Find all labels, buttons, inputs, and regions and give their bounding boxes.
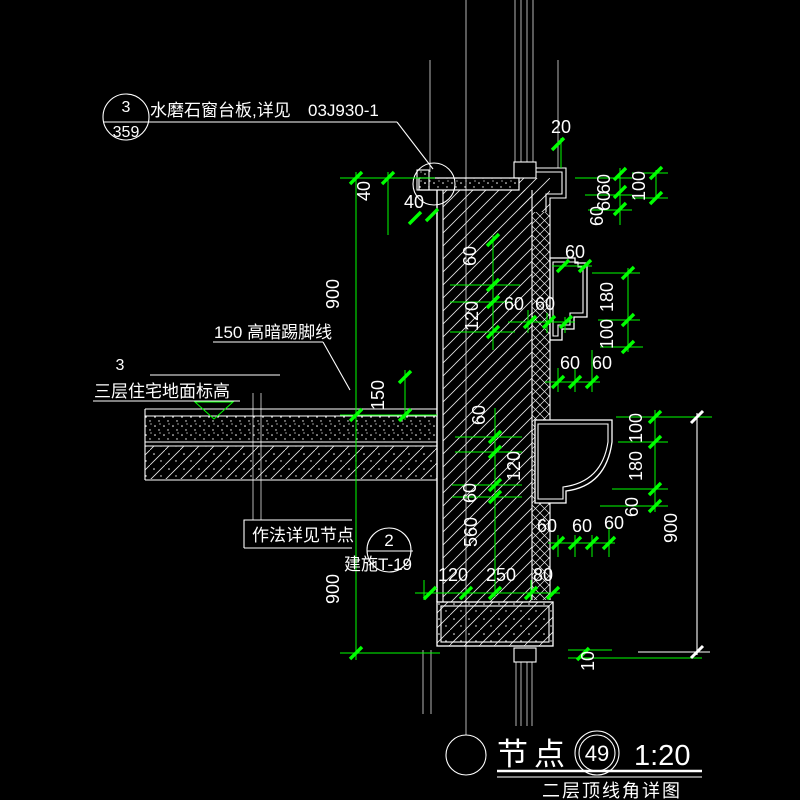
- dim-label: 120: [462, 301, 482, 331]
- dim-label: 900: [323, 574, 343, 604]
- dim-label: 40: [354, 181, 374, 201]
- title-name: 节点: [497, 737, 571, 772]
- dim-label: 60: [622, 497, 642, 517]
- callout-number: 3: [122, 99, 131, 116]
- dim-label: 180: [597, 282, 617, 312]
- title-subtitle: 二层顶线角详图: [542, 781, 682, 800]
- lower-cornice: [535, 420, 612, 503]
- title-block: 节点 49 1:20 二层顶线角详图: [446, 731, 702, 800]
- dim-label: 100: [626, 413, 646, 443]
- dim-label: 60: [604, 513, 624, 533]
- dim-label: 60: [565, 242, 585, 262]
- dim-label: 100: [629, 171, 649, 201]
- dim-label: 60: [560, 353, 580, 373]
- cad-viewport: 40 40 20 900 150 900 60 120 60 120 60 56…: [0, 0, 800, 800]
- dim-label: 60: [460, 246, 480, 266]
- title-node-circle: [446, 735, 486, 775]
- dim-label: 250: [486, 565, 516, 585]
- dim-label: 80: [533, 565, 553, 585]
- floor-slab: [145, 409, 437, 480]
- cad-canvas: 40 40 20 900 150 900 60 120 60 120 60 56…: [0, 0, 800, 800]
- title-scale: 1:20: [634, 740, 690, 772]
- dim-label: 100: [597, 319, 617, 349]
- cap-block: [514, 162, 536, 178]
- dim-label: 150: [368, 380, 388, 410]
- annotations: 3 359 水磨石窗台板,详见 03J930-1 150 高暗踢脚线 3 三层住…: [93, 94, 433, 574]
- dim-label: 120: [438, 565, 468, 585]
- dim-label: 60: [535, 294, 555, 314]
- callout-sheet: 建施T-19: [344, 555, 412, 574]
- bottom-band: [437, 602, 553, 646]
- dim-label: 20: [551, 117, 571, 137]
- dim-label: 10: [578, 651, 598, 671]
- callout-text: 水磨石窗台板,详见: [150, 101, 291, 120]
- dim-label: 560: [461, 517, 481, 547]
- dim-label: 900: [323, 279, 343, 309]
- skirting-note: 150 高暗踢脚线: [214, 323, 332, 342]
- title-number: 49: [585, 741, 609, 766]
- method-note: 作法详见节点: [252, 526, 354, 545]
- dim-label: 180: [626, 451, 646, 481]
- dim-label: 60: [469, 405, 489, 425]
- dim-label: 120: [504, 451, 524, 481]
- level-label: 三层住宅地面标高: [94, 382, 230, 401]
- dim-label: 40: [404, 192, 424, 212]
- dim-label: 60: [460, 483, 480, 503]
- dim-label: 60: [587, 206, 607, 226]
- dim-label: 60: [537, 516, 557, 536]
- dim-label: 60: [572, 516, 592, 536]
- dim-label: 60: [504, 294, 524, 314]
- window-sill-board: [419, 178, 519, 190]
- callout-code: 03J930-1: [308, 101, 379, 120]
- callout-sheet: 359: [113, 124, 140, 141]
- leader-line: [323, 342, 350, 390]
- leader-line: [397, 122, 433, 169]
- callout-number: 2: [384, 531, 393, 550]
- dim-label: 60: [592, 353, 612, 373]
- level-number: 3: [116, 357, 125, 374]
- drip-block: [514, 648, 536, 662]
- dim-label: 900: [661, 513, 681, 543]
